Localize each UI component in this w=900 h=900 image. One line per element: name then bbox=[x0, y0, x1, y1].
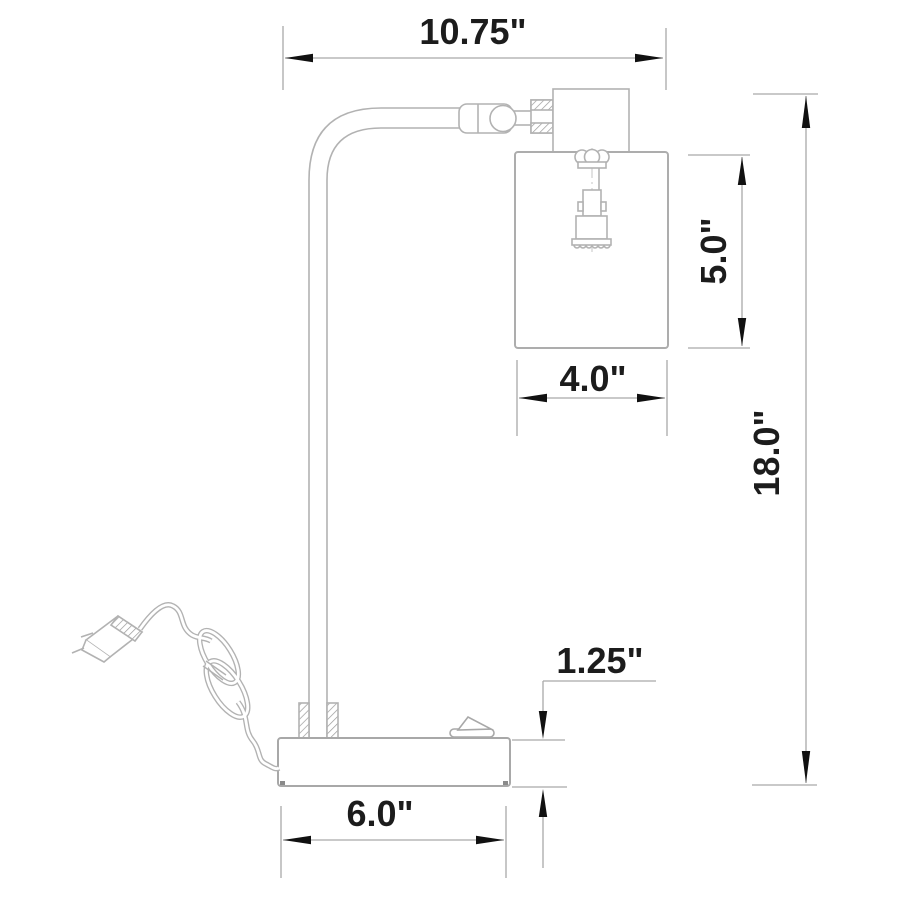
knurl-bottom bbox=[531, 123, 553, 133]
arrowhead-down bbox=[802, 751, 810, 783]
pole-collar-right bbox=[327, 703, 338, 738]
label-shade-width: 4.0" bbox=[559, 358, 626, 399]
socket-housing bbox=[553, 89, 629, 152]
socket-upper-body bbox=[583, 190, 601, 216]
knurl-top bbox=[531, 100, 553, 110]
arrowhead-up bbox=[802, 96, 810, 128]
arm-joint bbox=[459, 100, 553, 133]
base-foot bbox=[503, 781, 508, 785]
arrowhead-right bbox=[476, 836, 504, 844]
label-shade-height: 5.0" bbox=[693, 217, 734, 284]
socket-flange bbox=[578, 162, 606, 168]
dim-base-height bbox=[512, 681, 656, 868]
arrowhead-up bbox=[738, 157, 746, 185]
curved-pole-arm bbox=[309, 108, 460, 738]
base-foot bbox=[280, 781, 285, 785]
arrowhead-left bbox=[285, 54, 313, 62]
socket-thread-band bbox=[572, 239, 611, 245]
label-overall-height: 18.0" bbox=[746, 409, 787, 496]
arrowhead-right bbox=[635, 54, 663, 62]
arrowhead-down bbox=[539, 711, 547, 739]
two-prong-plug bbox=[72, 616, 142, 662]
socket-lower-body bbox=[576, 216, 607, 239]
lamp-dimension-drawing: 10.75" 5.0" 4.0" 18.0" 1.25" 6.0" bbox=[0, 0, 900, 900]
base-group bbox=[278, 703, 510, 786]
arrowhead-left bbox=[519, 394, 547, 402]
arrowhead-up bbox=[539, 789, 547, 817]
label-base-height: 1.25" bbox=[556, 640, 643, 681]
socket-tab bbox=[578, 202, 583, 211]
pole-inner-edge bbox=[327, 128, 460, 738]
pole-outer-edge bbox=[309, 108, 460, 738]
label-overall-width: 10.75" bbox=[419, 11, 526, 52]
socket-thread-scallops bbox=[574, 245, 610, 248]
arrowhead-right bbox=[637, 394, 665, 402]
socket-tab bbox=[601, 202, 606, 211]
drawing-svg: 10.75" 5.0" 4.0" 18.0" 1.25" 6.0" bbox=[0, 0, 900, 900]
arrowhead-down bbox=[738, 318, 746, 346]
ball-joint bbox=[490, 106, 516, 132]
label-base-width: 6.0" bbox=[346, 793, 413, 834]
pole-collar-left bbox=[299, 703, 309, 738]
toggle-switch bbox=[458, 717, 491, 730]
power-cord bbox=[140, 605, 279, 769]
arrowhead-left bbox=[283, 836, 311, 844]
rectangular-base bbox=[278, 738, 510, 786]
